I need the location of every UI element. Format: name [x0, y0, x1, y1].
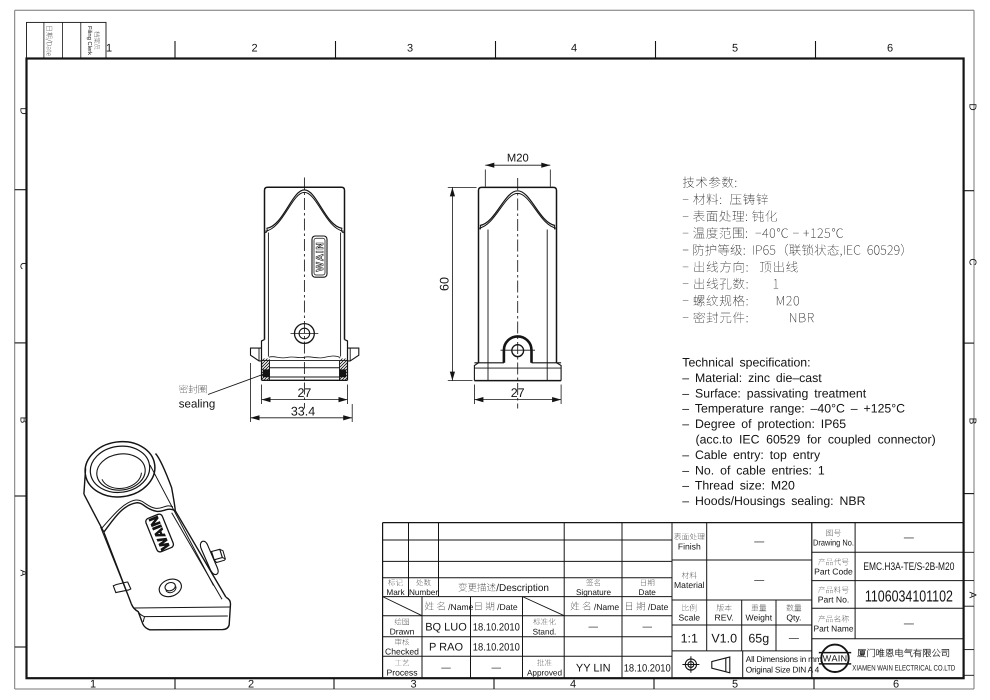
svg-text:– Surface: passivating treatme: – Surface: passivating treatment [682, 386, 866, 400]
svg-text:—: — [754, 575, 764, 586]
svg-text:—: — [904, 532, 914, 543]
svg-text:/Name: /Name [448, 602, 474, 612]
svg-text:C: C [966, 258, 977, 265]
svg-text:60: 60 [437, 277, 451, 291]
svg-text:– Cable entry: top entry: – Cable entry: top entry [682, 448, 821, 462]
svg-text:C: C [18, 262, 29, 269]
svg-text:B: B [18, 417, 29, 424]
svg-text:Process: Process [386, 667, 417, 677]
svg-text:Qty.: Qty. [786, 613, 801, 623]
svg-text:A: A [966, 592, 977, 599]
svg-text:sealing: sealing [179, 398, 215, 410]
svg-text:– Degree of protection: IP65: – Degree of protection: IP65 [682, 417, 846, 431]
svg-text:—: — [904, 619, 914, 630]
svg-text:Part No.: Part No. [818, 594, 850, 604]
svg-text:/Date: /Date [497, 602, 518, 612]
svg-text:Material: Material [674, 580, 705, 590]
svg-text:Scale: Scale [679, 613, 701, 623]
svg-text:– Material: zinc die–cast: – Material: zinc die–cast [682, 371, 822, 385]
svg-text:3: 3 [407, 43, 413, 55]
svg-text:Drawn: Drawn [390, 626, 415, 636]
svg-text:3: 3 [410, 679, 416, 691]
svg-text:—: — [754, 536, 764, 547]
svg-text:4: 4 [570, 679, 576, 691]
svg-text:Part Code: Part Code [814, 566, 853, 576]
svg-text:– No. of cable entries: 1: – No. of cable entries: 1 [682, 463, 825, 477]
svg-text:– Thread size: M20: – Thread size: M20 [682, 479, 795, 493]
svg-text:2: 2 [251, 43, 257, 55]
svg-text:27: 27 [511, 386, 525, 400]
svg-text:Part Name: Part Name [814, 624, 854, 634]
svg-text:Approved: Approved [527, 668, 562, 677]
svg-text:/Name: /Name [594, 602, 620, 612]
svg-text:Drawing No.: Drawing No. [813, 537, 854, 547]
svg-text:Number: Number [409, 588, 438, 597]
svg-text:M20: M20 [507, 153, 529, 165]
svg-text:Checked: Checked [385, 647, 419, 657]
svg-text:V1.0: V1.0 [711, 631, 737, 645]
svg-text:Signature: Signature [576, 588, 611, 597]
svg-text:YY LIN: YY LIN [576, 662, 611, 674]
svg-text:(acc.to IEC 60529 for coupled: (acc.to IEC 60529 for coupled connector) [696, 433, 936, 447]
svg-text:Stand.: Stand. [533, 627, 557, 636]
svg-text:REV.: REV. [715, 613, 734, 623]
svg-text:Original Size DIN A 4: Original Size DIN A 4 [746, 664, 820, 674]
svg-text:18.10.2010: 18.10.2010 [624, 662, 671, 674]
svg-text:5: 5 [732, 679, 738, 691]
svg-text:18.10.2010: 18.10.2010 [473, 621, 520, 633]
svg-text:– Hoods/Housings sealing: NBR: – Hoods/Housings sealing: NBR [682, 494, 865, 508]
svg-text:6: 6 [893, 679, 899, 691]
svg-text:—: — [492, 662, 502, 673]
svg-text:27: 27 [297, 386, 311, 400]
svg-text:—: — [588, 621, 598, 632]
svg-text:All Dimensions in mm: All Dimensions in mm [746, 654, 822, 664]
svg-text:Mark: Mark [386, 588, 405, 597]
svg-text:/Date: /Date [648, 602, 669, 612]
svg-text:1: 1 [106, 43, 112, 55]
svg-text:D: D [966, 103, 977, 110]
svg-text:1:1: 1:1 [681, 631, 698, 645]
svg-text:4: 4 [571, 43, 577, 55]
svg-text:D: D [18, 107, 29, 114]
svg-text:Weight: Weight [746, 613, 773, 623]
svg-text:6: 6 [887, 43, 893, 55]
svg-text:P RAO: P RAO [429, 642, 463, 654]
svg-text:1106034101102: 1106034101102 [865, 589, 953, 606]
svg-text:5: 5 [732, 43, 738, 55]
svg-text:—: — [441, 662, 451, 673]
svg-text:—: — [642, 621, 652, 632]
svg-text:XIAMEN WAIN ELECTRICAL CO.LTD: XIAMEN WAIN ELECTRICAL CO.LTD [852, 663, 955, 672]
svg-text:33.4: 33.4 [291, 404, 315, 418]
svg-text:Date: Date [639, 588, 657, 597]
svg-text:B: B [966, 418, 977, 425]
svg-text:Finish: Finish [678, 541, 701, 551]
svg-text:2: 2 [248, 679, 254, 691]
svg-text:– Temperature range: –40°C – +: – Temperature range: –40°C – +125°C [682, 402, 905, 416]
svg-text:BQ LUO: BQ LUO [425, 621, 467, 633]
svg-text:18.10.2010: 18.10.2010 [473, 642, 520, 654]
svg-text:1: 1 [90, 679, 96, 691]
svg-text:—: — [789, 633, 799, 644]
svg-text:65g: 65g [748, 631, 769, 645]
svg-text:Technical specification:: Technical specification: [682, 356, 810, 370]
svg-text:A: A [18, 570, 29, 577]
svg-text:EMC.H3A-TE/S-2B-M20: EMC.H3A-TE/S-2B-M20 [863, 561, 954, 573]
svg-text:/Description: /Description [496, 583, 549, 594]
